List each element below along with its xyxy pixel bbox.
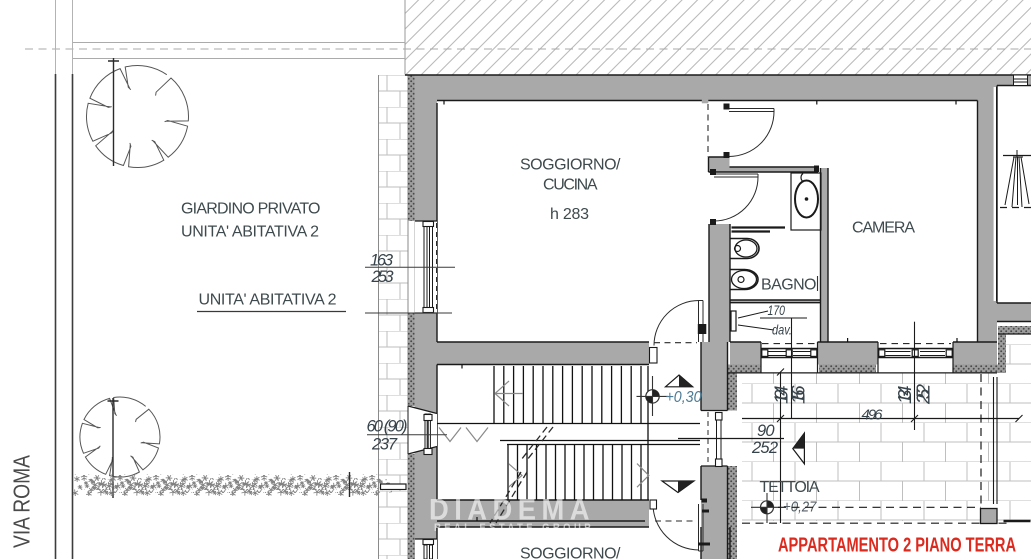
svg-text:496: 496 bbox=[862, 407, 884, 424]
svg-text:BAGNO: BAGNO bbox=[761, 277, 817, 294]
svg-text:REAL ESTATE GROUP: REAL ESTATE GROUP bbox=[434, 522, 594, 534]
svg-text:VIA ROMA: VIA ROMA bbox=[9, 454, 35, 548]
svg-text:237: 237 bbox=[371, 436, 398, 454]
svg-text:h 283: h 283 bbox=[550, 206, 589, 223]
svg-text:SOGGIORNO/: SOGGIORNO/ bbox=[520, 546, 621, 559]
svg-text:TETTOIA: TETTOIA bbox=[760, 479, 820, 496]
svg-text:170: 170 bbox=[768, 302, 786, 318]
svg-text:UNITA' ABITATIVA 2: UNITA' ABITATIVA 2 bbox=[199, 292, 337, 309]
svg-text:UNITA' ABITATIVA 2: UNITA' ABITATIVA 2 bbox=[181, 224, 319, 241]
svg-text:CAMERA: CAMERA bbox=[852, 220, 915, 237]
svg-text:163: 163 bbox=[370, 252, 394, 270]
svg-text:CUCINA: CUCINA bbox=[543, 177, 598, 194]
svg-text:60 (90): 60 (90) bbox=[367, 418, 408, 436]
svg-text:253: 253 bbox=[371, 268, 395, 286]
svg-text:APPARTAMENTO 2 PIANO TERRA: APPARTAMENTO 2 PIANO TERRA bbox=[778, 535, 1016, 557]
svg-text:156: 156 bbox=[788, 385, 809, 404]
svg-text:SOGGIORNO/: SOGGIORNO/ bbox=[520, 157, 621, 174]
svg-text:+0,30: +0,30 bbox=[666, 389, 702, 406]
svg-text:GIARDINO PRIVATO: GIARDINO PRIVATO bbox=[181, 201, 321, 218]
svg-text:252: 252 bbox=[913, 383, 934, 405]
svg-text:252: 252 bbox=[751, 439, 778, 457]
svg-text:dav.: dav. bbox=[772, 322, 792, 338]
svg-text:90: 90 bbox=[757, 422, 775, 440]
